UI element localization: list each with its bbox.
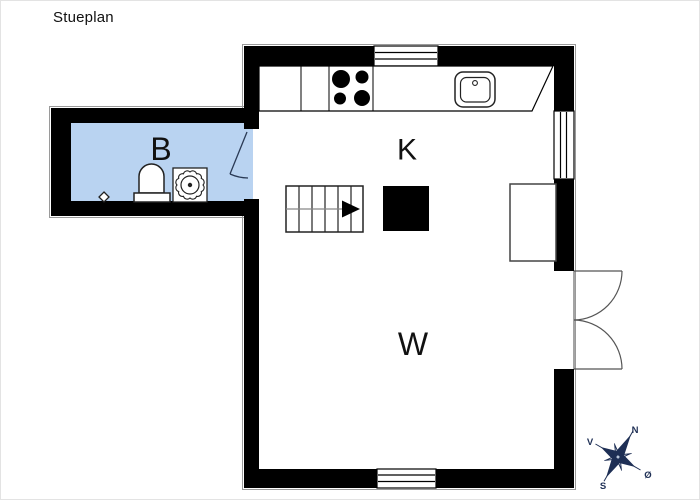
door-swing-arc-top <box>574 271 622 320</box>
walls <box>51 46 574 488</box>
window-top <box>374 46 438 66</box>
window-right <box>554 111 574 179</box>
compass-north-label: N <box>632 425 639 436</box>
double-door <box>554 271 622 369</box>
compass-rose-icon: N Ø S V <box>581 418 655 494</box>
room-label-living-room: W <box>398 326 429 362</box>
window-bottom <box>377 469 436 488</box>
floorplan-drawing: B K W N Ø S V <box>1 1 700 500</box>
sink-icon <box>455 72 495 107</box>
annex-wall-top <box>51 108 244 123</box>
wall-left-lower <box>244 199 259 469</box>
stairs-icon <box>286 186 363 232</box>
compass-south-label: S <box>600 481 606 492</box>
door-swing-arc-bottom <box>574 320 622 369</box>
chimney <box>383 186 429 231</box>
compass-west-label: V <box>587 437 594 448</box>
floorplan-canvas: Stueplan <box>0 0 700 500</box>
kitchen-counter <box>259 66 553 111</box>
compass-east-label: Ø <box>644 470 651 481</box>
room-label-bathroom: B <box>150 131 171 167</box>
cabinet <box>510 184 556 261</box>
wall-left-upper <box>244 66 259 129</box>
room-label-kitchen: K <box>397 134 417 167</box>
shower-icon <box>173 168 207 202</box>
annex-wall-left <box>51 108 71 216</box>
annex-wall-bottom <box>51 201 244 216</box>
